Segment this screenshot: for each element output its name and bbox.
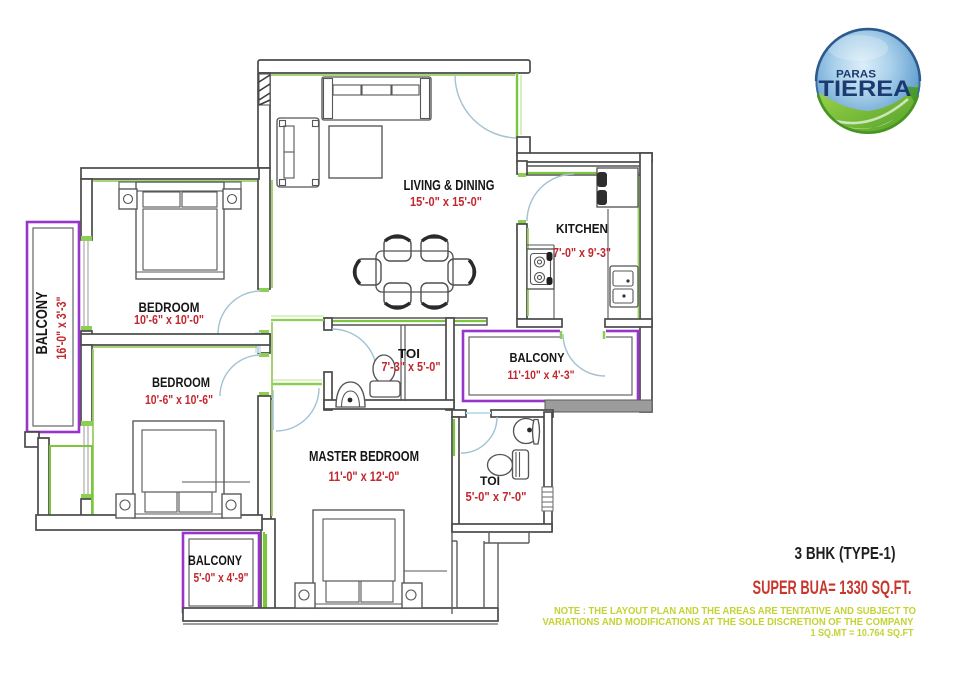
svg-text:BALCONY: BALCONY [510,351,566,365]
svg-text:5'-0" x 4'-9": 5'-0" x 4'-9" [194,571,249,585]
svg-text:1 SQ.MT = 10.764 SQ.FT: 1 SQ.MT = 10.764 SQ.FT [811,628,914,639]
svg-text:10'-6" x 10'-6": 10'-6" x 10'-6" [145,393,213,407]
svg-text:11'-0" x 12'-0": 11'-0" x 12'-0" [329,469,400,484]
svg-text:10'-6" x 10'-0": 10'-6" x 10'-0" [134,313,204,327]
svg-text:MASTER BEDROOM: MASTER BEDROOM [309,448,419,465]
svg-text:TOI: TOI [480,474,500,488]
svg-text:16'-0" x 3'-3": 16'-0" x 3'-3" [54,297,69,360]
svg-text:KITCHEN: KITCHEN [556,221,608,236]
svg-text:TIEREA: TIEREA [819,76,912,101]
svg-text:BEDROOM: BEDROOM [152,374,210,390]
svg-text:VARIATIONS AND MODIFICATIONS A: VARIATIONS AND MODIFICATIONS AT THE SOLE… [543,617,914,628]
svg-text:LIVING & DINING: LIVING & DINING [404,177,495,194]
svg-text:5'-0" x 7'-0": 5'-0" x 7'-0" [466,489,527,504]
svg-text:SUPER BUA= 1330 SQ.FT.: SUPER BUA= 1330 SQ.FT. [753,578,912,599]
svg-text:BALCONY: BALCONY [188,553,242,568]
svg-text:BALCONY: BALCONY [34,291,51,354]
svg-text:15'-0" x 15'-0": 15'-0" x 15'-0" [410,194,482,209]
svg-text:3 BHK (TYPE-1): 3 BHK (TYPE-1) [795,543,896,563]
svg-text:11'-10" x 4'-3": 11'-10" x 4'-3" [508,368,575,382]
svg-text:7'-3" x 5'-0": 7'-3" x 5'-0" [382,359,441,374]
svg-text:NOTE : THE LAYOUT PLAN AND TH: NOTE : THE LAYOUT PLAN AND THE AREAS ARE… [554,606,916,617]
svg-text:7'-0" x 9'-3": 7'-0" x 9'-3" [553,246,611,260]
